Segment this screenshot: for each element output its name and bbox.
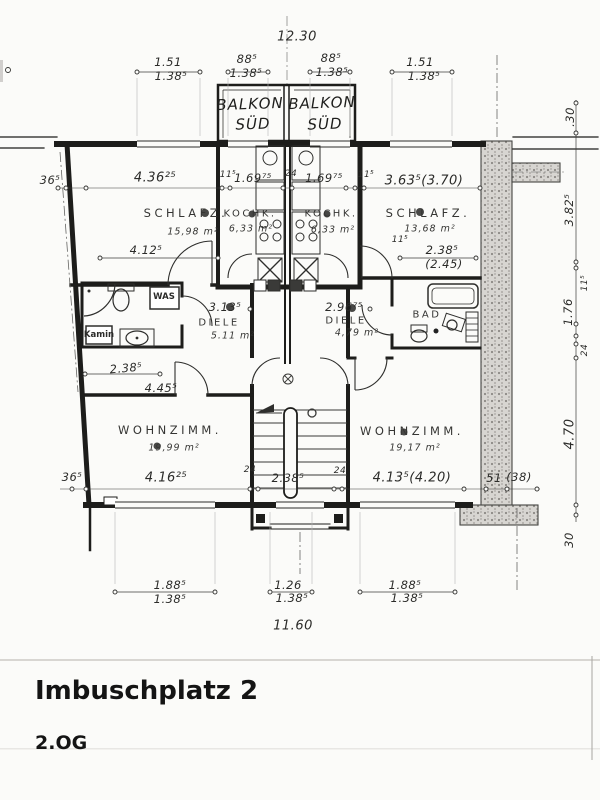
balcony-left-label-2: SÜD [235,114,271,133]
dim-top-win-right-upper: 1.51 [406,55,434,69]
area-diele-right: 4,79 m² [335,328,379,339]
chimney-label: Kamin [84,330,114,340]
dim-right-wohnz-depth: 4.70 [563,419,578,450]
room-kochkueche-right: KOCHK. [304,209,357,220]
dim-wall-24-top: 24 [285,169,297,179]
room-kochkueche-left: KOCHK. [223,209,276,220]
room-bad: BAD [413,310,442,321]
dim-wohnz-r-width: 4.13⁵(4.20) [373,471,452,486]
area-schlafzimmer-left: 15,98 m² [167,227,218,238]
room-wohnzimmer-right: WOHNZIMM. [360,424,464,438]
room-diele-right: DIELE [325,316,366,327]
dim-wall-11-c: 11⁵ [392,235,409,245]
dim-right-30-bottom: 30 [562,532,576,548]
dim-top-balc-left-lower: 1.38⁵ [230,66,263,80]
washing-machine-label: WAS [153,292,175,302]
dim-diele-l-width: 3.13⁵ [209,300,242,314]
dim-top-balc-right-lower: 1.38⁵ [316,65,349,79]
dim-bath-l-width: 2.38⁵ [109,360,143,377]
area-kochkueche-right: 6,33 m² [311,225,355,236]
dim-top-win-left-lower: 1.38⁵ [155,69,188,83]
dim-bad-width-alt: (2.45) [425,257,463,271]
balcony-right-label-1: BALKON [288,93,356,113]
dim-wohnz-l-top-width: 4.45⁵ [145,381,178,395]
dim-left-wall-bottom: 36⁵ [62,470,83,484]
dim-wall-51: 51 [486,471,502,485]
dim-kochk-l-width: 1.69⁷⁵ [234,171,272,185]
room-schlafzimmer-left: SCHLAFZ. [144,206,229,220]
plan-title: Imbuschplatz 2 [35,676,258,706]
dim-right-24: 24 [580,344,590,356]
dim-schlafz-r-width: 3.63⁵(3.70) [385,174,464,189]
dim-right-30-top: .30 [563,107,577,127]
dim-wohnz-l-width: 4.16²⁵ [145,471,187,486]
balcony-right-label-2: SÜD [307,114,343,133]
area-diele-left: 5.11 m² [211,331,255,342]
dim-right-bad-depth: 1.76 [561,298,575,326]
dim-stair-wall-left: 24 [244,465,256,475]
dim-stair-width: 2.38⁵ [272,471,305,485]
area-wohnzimmer-left: 19,99 m² [148,443,199,454]
dim-stair-wall-right: 24 [334,466,346,476]
room-wohnzimmer-left: WOHNZIMM. [118,423,222,437]
dim-schlafz-l-inner: 4.12⁵ [130,243,163,257]
dim-left-wall-top: 36⁵ [40,173,61,187]
dim-top-win-right-lower: 1.38⁵ [408,69,441,83]
floor-plan-sheet: 12.30 1.51 1.38⁵ 88⁵ 1.38⁵ 88⁵ 1.38⁵ 1.5… [0,0,600,800]
area-kochkueche-left: 6,33 m² [229,224,273,235]
dim-kochk-r-width: 1.69⁷⁵ [305,171,343,185]
dim-bottom-win-mid-upper: 1.26 [274,578,302,592]
dim-diele-r-width: 2.96⁷⁵ [325,300,363,314]
hatched-wall [460,141,560,525]
dim-bad-width: 2.38⁵ [426,243,459,257]
dim-top-balc-left-upper: 88⁵ [237,52,258,66]
dim-right-11: 11⁵ [580,275,590,292]
dim-bottom-win-right-upper: 1.88⁵ [389,578,422,592]
area-schlafzimmer-right: 13,68 m² [404,224,455,235]
dim-wall-11-b: 11⁵ [358,170,375,180]
area-wohnzimmer-right: 19,17 m² [389,443,440,454]
dim-top-win-left-upper: 1.51 [154,55,182,69]
dim-wall-38: (38) [506,470,532,484]
plan-floor-label: 2.OG [35,732,87,754]
room-diele-left: DIELE [198,318,239,329]
balcony-left-label-1: BALKON [216,94,284,114]
dim-bottom-win-right-lower: 1.38⁵ [391,591,424,605]
dim-bottom-win-left-upper: 1.88⁵ [154,578,187,592]
dim-bottom-total: 11.60 [273,619,313,634]
dim-top-total: 12.30 [277,30,317,45]
dim-bottom-win-mid-lower: 1.38⁵ [276,591,309,605]
dim-right-schlafz-depth: 3.82⁵ [562,194,576,227]
dim-bottom-win-left-lower: 1.38⁵ [154,592,187,606]
dim-schlafz-l-width: 4.36²⁵ [134,171,176,186]
dim-top-balc-right-upper: 88⁵ [321,51,342,65]
room-schlafzimmer-right: SCHLAFZ. [386,206,471,220]
